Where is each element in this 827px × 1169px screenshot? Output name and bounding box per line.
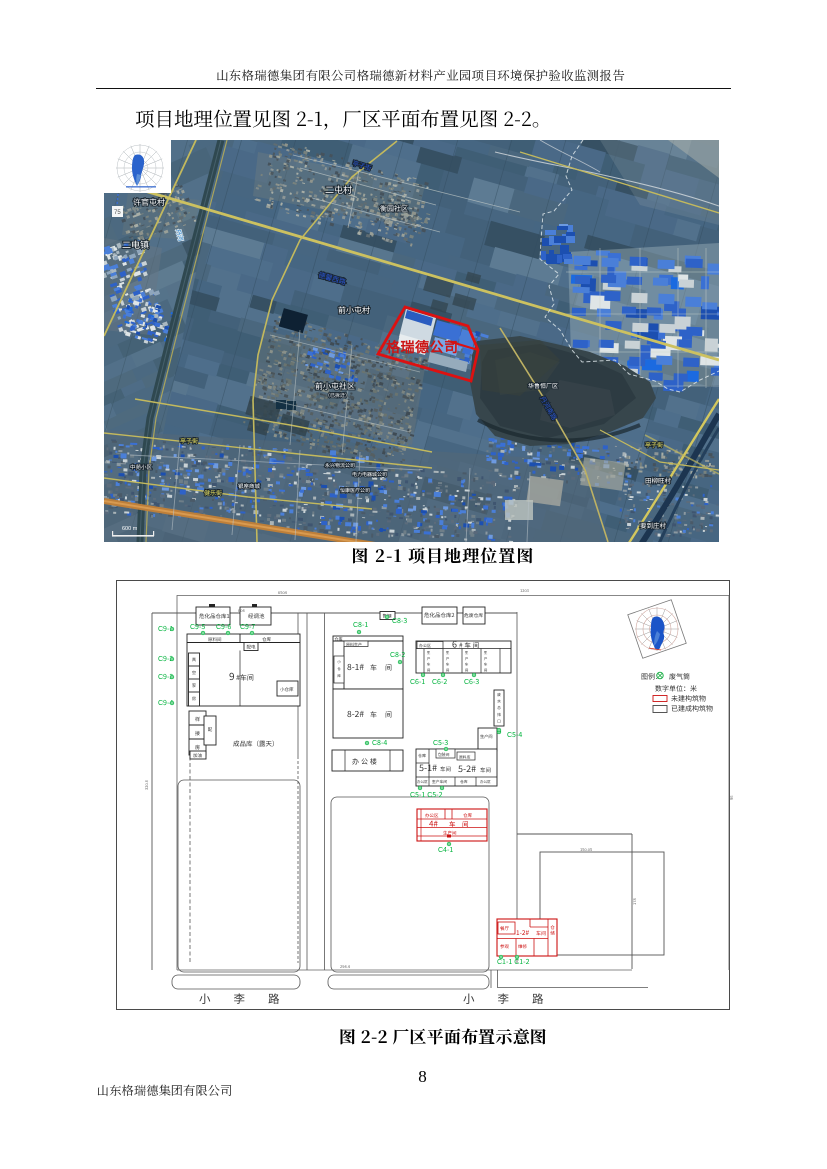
svg-text:车间: 车间 [480, 766, 491, 774]
svg-text:加油: 加油 [193, 753, 202, 759]
svg-text:前小屯社区: 前小屯社区 [315, 381, 355, 392]
svg-text:6: 6 [452, 638, 457, 651]
svg-text:原料库: 原料库 [459, 755, 471, 761]
svg-text:604: 604 [238, 608, 245, 614]
svg-text:间: 间 [465, 668, 469, 673]
svg-text:总: 总 [497, 705, 501, 711]
svg-text:衡园社区: 衡园社区 [380, 204, 408, 214]
svg-text:生: 生 [465, 650, 469, 656]
svg-text:间: 间 [385, 710, 392, 720]
svg-text:亭子街: 亭子街 [645, 440, 663, 449]
svg-text:房: 房 [195, 744, 200, 751]
svg-text:生产间: 生产间 [480, 734, 493, 740]
svg-text:8-2#: 8-2# [347, 708, 364, 720]
svg-text:C9-7: C9-7 [240, 622, 255, 632]
svg-text:仓: 仓 [337, 666, 341, 672]
svg-text:已建成构筑物: 已建成构筑物 [671, 704, 713, 714]
svg-text:产: 产 [465, 656, 469, 662]
svg-text:恒康医疗公司: 恒康医疗公司 [340, 487, 370, 494]
svg-text:5-2#: 5-2# [458, 762, 476, 775]
svg-text:许官屯村: 许官屯村 [133, 197, 165, 208]
svg-text:C5-1 C5-2: C5-1 C5-2 [410, 790, 443, 800]
svg-text:原料生产: 原料生产 [346, 642, 362, 648]
svg-text:C5-4: C5-4 [507, 730, 522, 740]
svg-text:口: 口 [497, 719, 501, 724]
svg-text:维修: 维修 [518, 944, 527, 950]
svg-text:办公区: 办公区 [480, 779, 491, 785]
svg-text:电力电器城公司: 电力电器城公司 [352, 471, 387, 478]
svg-text:600 m: 600 m [122, 526, 138, 532]
svg-text:原料间: 原料间 [208, 637, 222, 643]
svg-text:亭子街: 亭子街 [180, 436, 198, 445]
svg-text:仓库: 仓库 [335, 637, 343, 643]
svg-text:配电: 配电 [247, 645, 256, 651]
svg-text:C6-1: C6-1 [410, 677, 425, 687]
svg-text:前小屯村: 前小屯村 [338, 305, 370, 316]
svg-text:办公区: 办公区 [417, 779, 428, 785]
svg-text:参观: 参观 [500, 944, 509, 950]
svg-text:配: 配 [208, 727, 213, 733]
svg-text:间: 间 [385, 663, 392, 673]
svg-text:产: 产 [484, 656, 488, 662]
svg-text:仓库: 仓库 [418, 753, 426, 759]
svg-text:C8-4: C8-4 [372, 738, 387, 748]
svg-text:间: 间 [462, 819, 469, 829]
svg-text:危废仓库: 危废仓库 [464, 612, 483, 619]
svg-text:危化品仓库1: 危化品仓库1 [199, 612, 230, 620]
svg-text:# 车 间: # 车 间 [459, 640, 479, 650]
svg-text:产: 产 [427, 656, 431, 662]
svg-text:库: 库 [337, 673, 341, 679]
svg-text:车间: 车间 [536, 930, 546, 937]
svg-text:小李路: 小李路 [463, 991, 567, 1007]
svg-text:生: 生 [484, 650, 488, 656]
svg-text:餐厅: 餐厅 [500, 926, 509, 932]
svg-text:320.6: 320.6 [144, 779, 150, 790]
svg-text:C9-5: C9-5 [190, 622, 205, 632]
svg-text:C8-2: C8-2 [390, 650, 405, 660]
svg-text:废: 废 [497, 692, 501, 698]
svg-text:产: 产 [446, 656, 450, 662]
svg-text:150.05: 150.05 [580, 847, 592, 853]
svg-text:8-1#: 8-1# [347, 661, 364, 673]
svg-text:数字单位：米: 数字单位：米 [655, 684, 697, 694]
svg-text:C8-1: C8-1 [353, 620, 368, 630]
svg-text:中苑小区: 中苑小区 [130, 463, 153, 471]
svg-text:办公区: 办公区 [419, 643, 431, 649]
svg-text:车: 车 [446, 662, 450, 668]
svg-text:二屯村: 二屯村 [325, 183, 352, 196]
svg-text:二电镇: 二电镇 [122, 238, 149, 251]
svg-text:C4-1: C4-1 [438, 845, 453, 855]
svg-text:75: 75 [114, 210, 121, 216]
svg-text:生产车间: 生产车间 [432, 779, 447, 785]
svg-text:178: 178 [632, 898, 638, 905]
svg-text:永兴物流公司: 永兴物流公司 [325, 462, 355, 469]
svg-text:车间: 车间 [440, 765, 451, 773]
svg-text:格瑞德公司: 格瑞德公司 [386, 337, 459, 357]
svg-text:C9-6: C9-6 [216, 622, 231, 632]
svg-text:9: 9 [229, 668, 235, 683]
svg-text:房: 房 [192, 696, 196, 702]
svg-text:银座商城: 银座商城 [238, 482, 261, 490]
svg-text:接: 接 [195, 730, 200, 737]
svg-text:经调池: 经调池 [248, 612, 265, 620]
svg-text:96: 96 [729, 795, 735, 800]
svg-text:小: 小 [337, 660, 341, 665]
svg-text:空: 空 [192, 670, 196, 676]
svg-text:车: 车 [484, 662, 488, 668]
svg-text:车: 车 [427, 662, 431, 668]
svg-text:5-1#: 5-1# [419, 761, 437, 774]
svg-text:健乐街: 健乐街 [204, 488, 222, 497]
svg-text:要到庄村: 要到庄村 [640, 520, 667, 530]
svg-text:水: 水 [497, 699, 501, 705]
svg-text:1-2#: 1-2# [516, 927, 529, 937]
svg-text:华鲁恒厂区: 华鲁恒厂区 [528, 381, 558, 390]
svg-text:真: 真 [192, 657, 196, 663]
svg-text:储: 储 [550, 931, 555, 937]
svg-text:间: 间 [427, 668, 431, 673]
svg-text:危化品仓库2: 危化品仓库2 [424, 611, 455, 619]
svg-text:泵: 泵 [192, 683, 196, 689]
svg-text:车: 车 [449, 819, 456, 829]
svg-text:办 公 楼: 办 公 楼 [352, 757, 377, 767]
svg-text:田柳旺村: 田柳旺村 [645, 475, 672, 485]
svg-text:294.4: 294.4 [340, 964, 351, 970]
svg-text:仓库: 仓库 [262, 637, 271, 643]
svg-text:（已拆迁）: （已拆迁） [325, 392, 350, 399]
svg-text:仓库: 仓库 [460, 779, 468, 785]
svg-text:6504: 6504 [278, 590, 288, 596]
svg-text:1203: 1203 [520, 588, 529, 594]
svg-text:间: 间 [446, 668, 450, 673]
svg-text:生: 生 [427, 650, 431, 656]
svg-text:小仓库: 小仓库 [280, 687, 294, 693]
svg-text:C5-3: C5-3 [433, 738, 448, 748]
svg-text:成品库（露天）: 成品库（露天） [233, 738, 279, 748]
svg-text:废气筒: 废气筒 [669, 672, 690, 682]
svg-text:车: 车 [370, 710, 377, 720]
svg-text:包装间: 包装间 [438, 752, 450, 758]
svg-text:C6-2: C6-2 [432, 677, 447, 687]
svg-text:生: 生 [446, 650, 450, 656]
svg-text:4#: 4# [429, 819, 438, 830]
svg-text:排: 排 [497, 712, 501, 718]
svg-text:间: 间 [484, 668, 488, 673]
svg-text:样: 样 [195, 716, 200, 723]
svg-text:#车间: #车间 [236, 673, 254, 683]
svg-text:车: 车 [370, 663, 377, 673]
svg-text:C8-3: C8-3 [392, 616, 407, 626]
svg-text:小李路: 小李路 [199, 991, 303, 1007]
svg-text:C6-3: C6-3 [464, 677, 479, 687]
svg-text:未建构筑物: 未建构筑物 [671, 694, 706, 704]
svg-text:车: 车 [465, 662, 469, 668]
